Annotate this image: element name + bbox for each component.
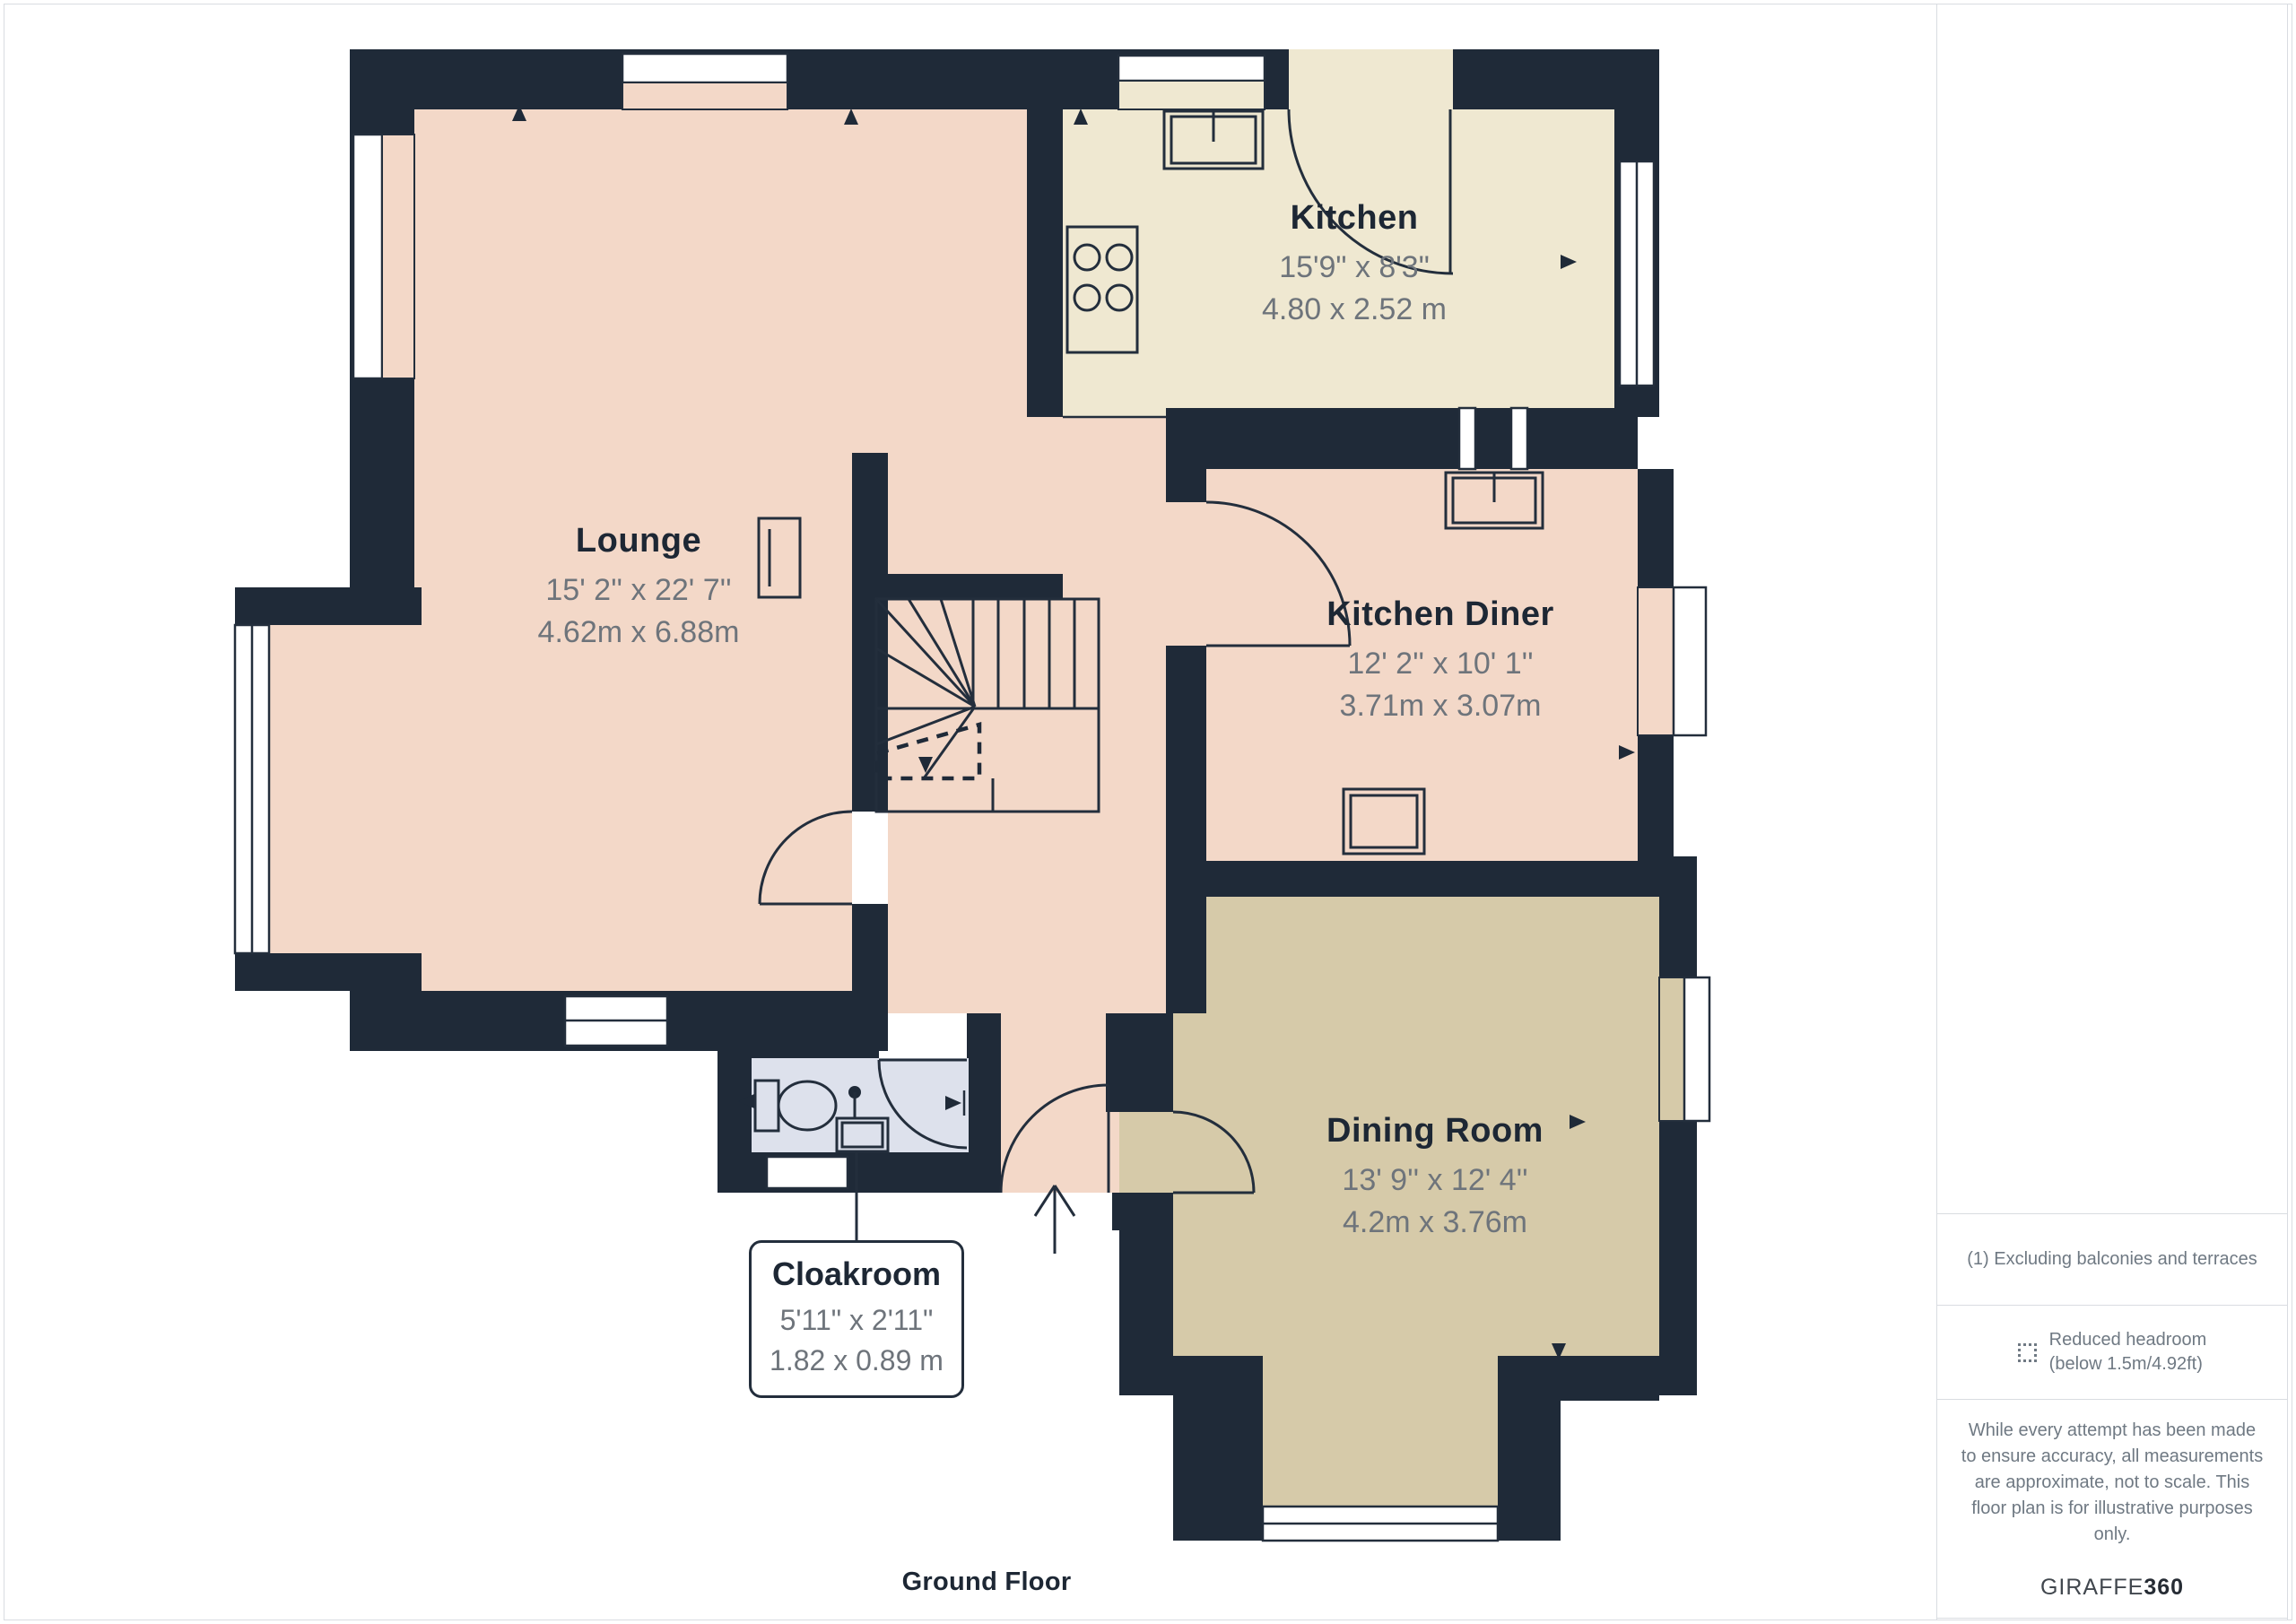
logo-part2: 360 (2144, 1575, 2184, 1600)
entry-arrow (1035, 1185, 1074, 1254)
sidebar-note-1: (1) Excluding balconies and terraces (1937, 1213, 2287, 1305)
kitchen-diner-name: Kitchen Diner (1326, 595, 1554, 634)
toilet (755, 1081, 836, 1131)
cloakroom-name: Cloakroom (761, 1255, 952, 1293)
giraffe360-logo: GIRAFFE360 (2040, 1575, 2184, 1601)
floorplan-page: Lounge 15' 2'' x 22' 7'' 4.62m x 6.88m K… (0, 0, 2296, 1624)
dining-right-window (1659, 977, 1709, 1121)
cloakroom-dims-metric: 1.82 x 0.89 m (761, 1341, 952, 1381)
cloakroom-dims-imperial: 5'11" x 2'11" (761, 1300, 952, 1341)
kitchen-diner-dims-imperial: 12' 2'' x 10' 1'' (1326, 643, 1554, 685)
room-lounge-floor (414, 109, 1063, 453)
room-label-kitchen-diner: Kitchen Diner 12' 2'' x 10' 1'' 3.71m x … (1326, 595, 1554, 727)
lounge-left-window (353, 135, 414, 378)
lounge-bay-window (235, 625, 269, 953)
lounge-bay-floor (269, 625, 414, 953)
dining-bay-floor (1263, 1356, 1498, 1507)
sidebar-disclaimer: While every attempt has been made to ens… (1937, 1399, 2287, 1619)
legend-line2: (below 1.5m/4.92ft) (2049, 1354, 2203, 1374)
kitchen-dims-metric: 4.80 x 2.52 m (1262, 289, 1447, 331)
lounge-bottom-window (565, 996, 667, 1046)
kitchen-diner-doorway-floor (1166, 502, 1206, 646)
room-label-kitchen: Kitchen 15'9" x 8'3" 4.80 x 2.52 m (1262, 199, 1447, 331)
kitchen-diner-dims-metric: 3.71m x 3.07m (1326, 685, 1554, 727)
sidebar-legend: Reduced headroom (below 1.5m/4.92ft) (1937, 1305, 2287, 1399)
dining-room-name: Dining Room (1326, 1112, 1544, 1151)
disclaimer-text: While every attempt has been made to ens… (1961, 1418, 2264, 1548)
kitchen-name: Kitchen (1262, 199, 1447, 238)
dining-room-dims-metric: 4.2m x 3.76m (1326, 1202, 1544, 1244)
dining-doorway-floor (1119, 1112, 1173, 1193)
room-label-lounge: Lounge 15' 2'' x 22' 7'' 4.62m x 6.88m (538, 522, 740, 654)
floor-title: Ground Floor (902, 1568, 1072, 1597)
room-label-dining-room: Dining Room 13' 9'' x 12' 4'' 4.2m x 3.7… (1326, 1112, 1544, 1244)
kitchen-right-window (1620, 161, 1654, 386)
cloakroom-callout: Cloakroom 5'11" x 2'11" 1.82 x 0.89 m (749, 1240, 964, 1398)
logo-part1: GIRAFFE (2040, 1575, 2144, 1600)
kitchen-top-window (1118, 56, 1265, 109)
lounge-dims-imperial: 15' 2'' x 22' 7'' (538, 569, 740, 612)
room-floors (269, 109, 1659, 1507)
note1-text: (1) Excluding balconies and terraces (1967, 1249, 2257, 1270)
entry-vestibule-floor (1001, 1013, 1119, 1193)
lounge-name: Lounge (538, 522, 740, 560)
legend-text: Reduced headroom (below 1.5m/4.92ft) (2049, 1328, 2207, 1376)
notes-sidebar: (1) Excluding balconies and terraces Red… (1936, 4, 2288, 1620)
passage-floor (1063, 417, 1166, 646)
cloakroom-window (767, 1157, 848, 1188)
dining-bay-window (1263, 1507, 1498, 1541)
lounge-top-window (622, 54, 787, 109)
dining-room-dims-imperial: 13' 9'' x 12' 4'' (1326, 1159, 1544, 1202)
kitchen-diner-right-window (1638, 587, 1706, 735)
legend-line1: Reduced headroom (2049, 1330, 2207, 1350)
reduced-headroom-icon (2018, 1343, 2037, 1362)
kitchen-dims-imperial: 15'9" x 8'3" (1262, 247, 1447, 289)
lounge-dims-metric: 4.62m x 6.88m (538, 612, 740, 654)
